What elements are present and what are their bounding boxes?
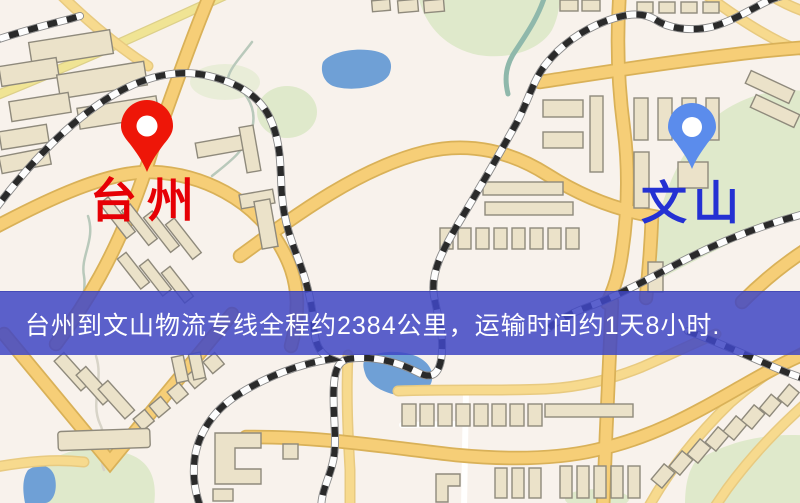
route-info-text: 台州到文山物流专线全程约2384公里，运输时间约1天8小时. xyxy=(0,306,720,342)
origin-city-label: 台州 xyxy=(90,179,204,226)
map-background xyxy=(0,0,800,503)
destination-city-label: 文山 xyxy=(641,180,745,226)
route-info-banner: 台州到文山物流专线全程约2384公里，运输时间约1天8小时. xyxy=(0,291,800,355)
map-canvas[interactable]: 台州 文山 台州到文山物流专线全程约2384公里，运输时间约1天8小时. xyxy=(0,0,800,503)
